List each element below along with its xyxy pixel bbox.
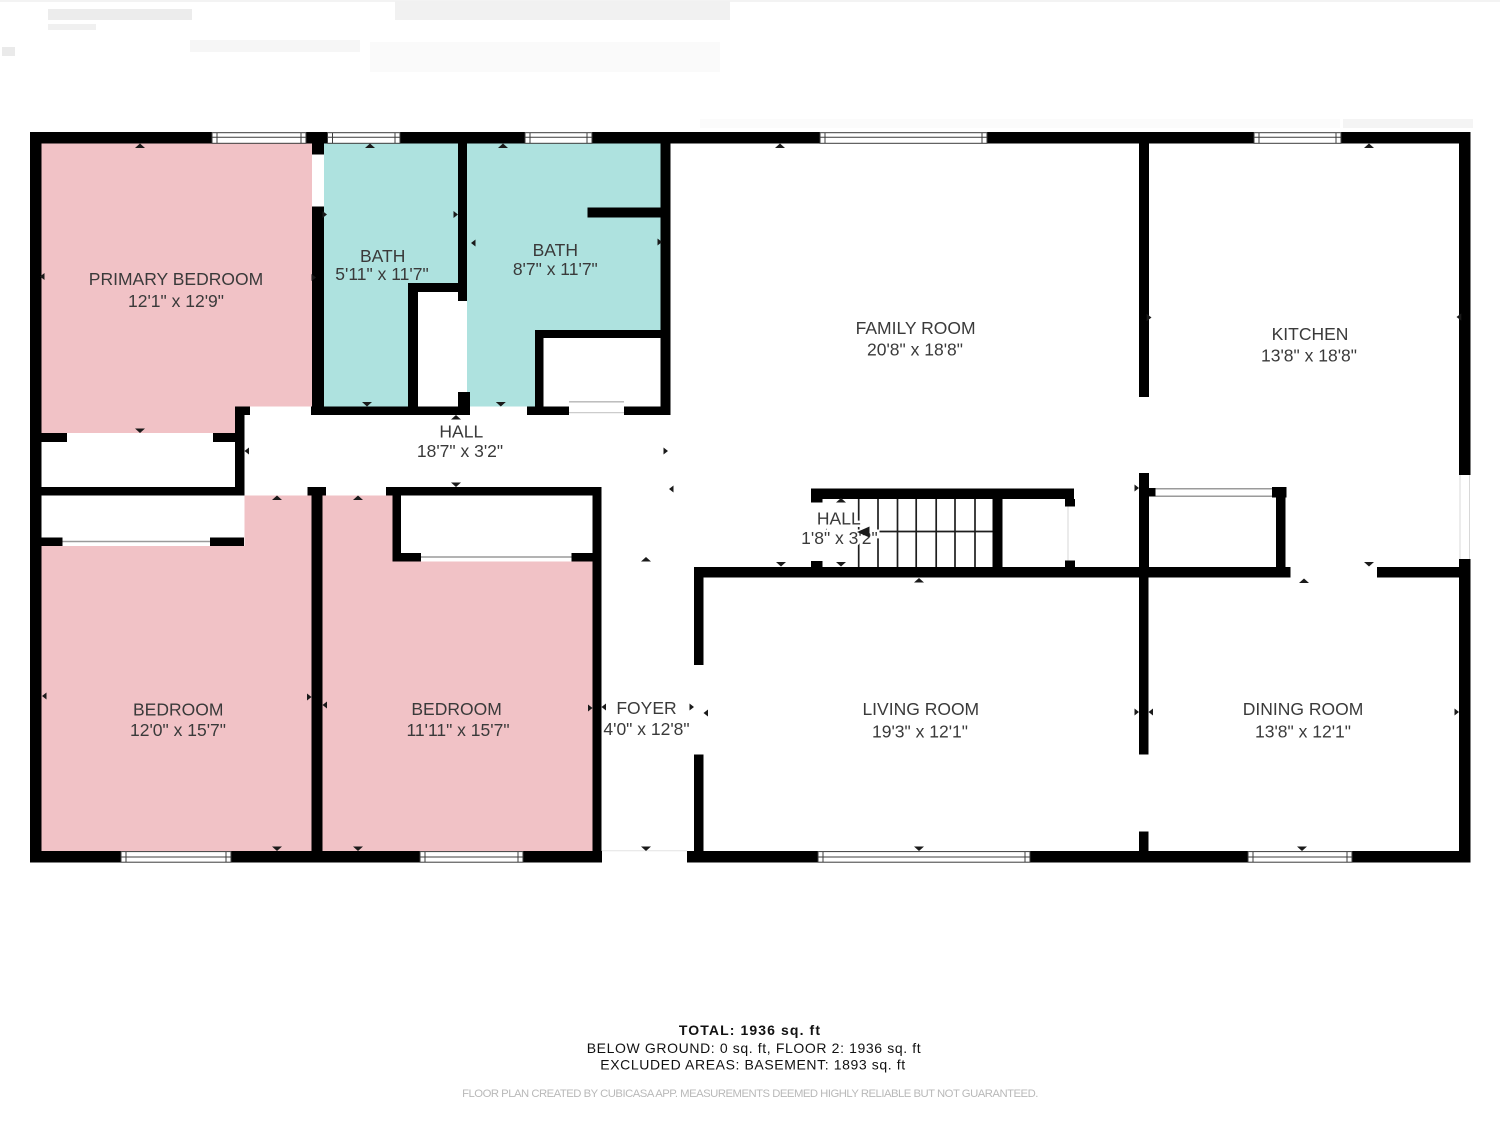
svg-text:BATH: BATH <box>533 240 578 260</box>
svg-text:5'11" x 11'7": 5'11" x 11'7" <box>335 264 428 284</box>
svg-text:BEDROOM: BEDROOM <box>411 699 501 719</box>
svg-text:11'11" x 15'7": 11'11" x 15'7" <box>406 720 509 740</box>
svg-text:13'8" x 18'8": 13'8" x 18'8" <box>1261 346 1357 366</box>
svg-text:DINING ROOM: DINING ROOM <box>1243 699 1364 719</box>
svg-text:4'0" x 12'8": 4'0" x 12'8" <box>603 719 689 739</box>
svg-text:BEDROOM: BEDROOM <box>133 700 223 720</box>
svg-text:HALL: HALL <box>439 422 483 442</box>
svg-text:KITCHEN: KITCHEN <box>1272 324 1349 344</box>
svg-text:TOTAL: 1936 sq. ft: TOTAL: 1936 sq. ft <box>679 1022 821 1038</box>
svg-text:12'0" x 15'7": 12'0" x 15'7" <box>130 720 226 740</box>
svg-text:BATH: BATH <box>360 246 405 266</box>
svg-text:FAMILY ROOM: FAMILY ROOM <box>856 318 976 338</box>
svg-text:8'7" x 11'7": 8'7" x 11'7" <box>513 259 598 279</box>
svg-text:LIVING ROOM: LIVING ROOM <box>862 699 979 719</box>
svg-text:19'3" x 12'1": 19'3" x 12'1" <box>872 722 968 742</box>
svg-text:HALL: HALL <box>817 509 861 529</box>
svg-text:PRIMARY BEDROOM: PRIMARY BEDROOM <box>89 269 263 289</box>
svg-text:FLOOR PLAN CREATED BY CUBICASA: FLOOR PLAN CREATED BY CUBICASA APP. MEAS… <box>462 1088 1038 1100</box>
svg-text:20'8" x 18'8": 20'8" x 18'8" <box>867 340 963 360</box>
svg-text:12'1" x 12'9": 12'1" x 12'9" <box>128 291 224 311</box>
svg-text:EXCLUDED AREAS: BASEMENT: 1893: EXCLUDED AREAS: BASEMENT: 1893 sq. ft <box>600 1057 905 1073</box>
svg-text:BELOW GROUND: 0 sq. ft, FLOOR: BELOW GROUND: 0 sq. ft, FLOOR 2: 1936 sq… <box>587 1040 922 1056</box>
svg-text:18'7" x 3'2": 18'7" x 3'2" <box>417 441 503 461</box>
svg-text:13'8" x 12'1": 13'8" x 12'1" <box>1255 722 1351 742</box>
svg-text:FOYER: FOYER <box>616 698 676 718</box>
